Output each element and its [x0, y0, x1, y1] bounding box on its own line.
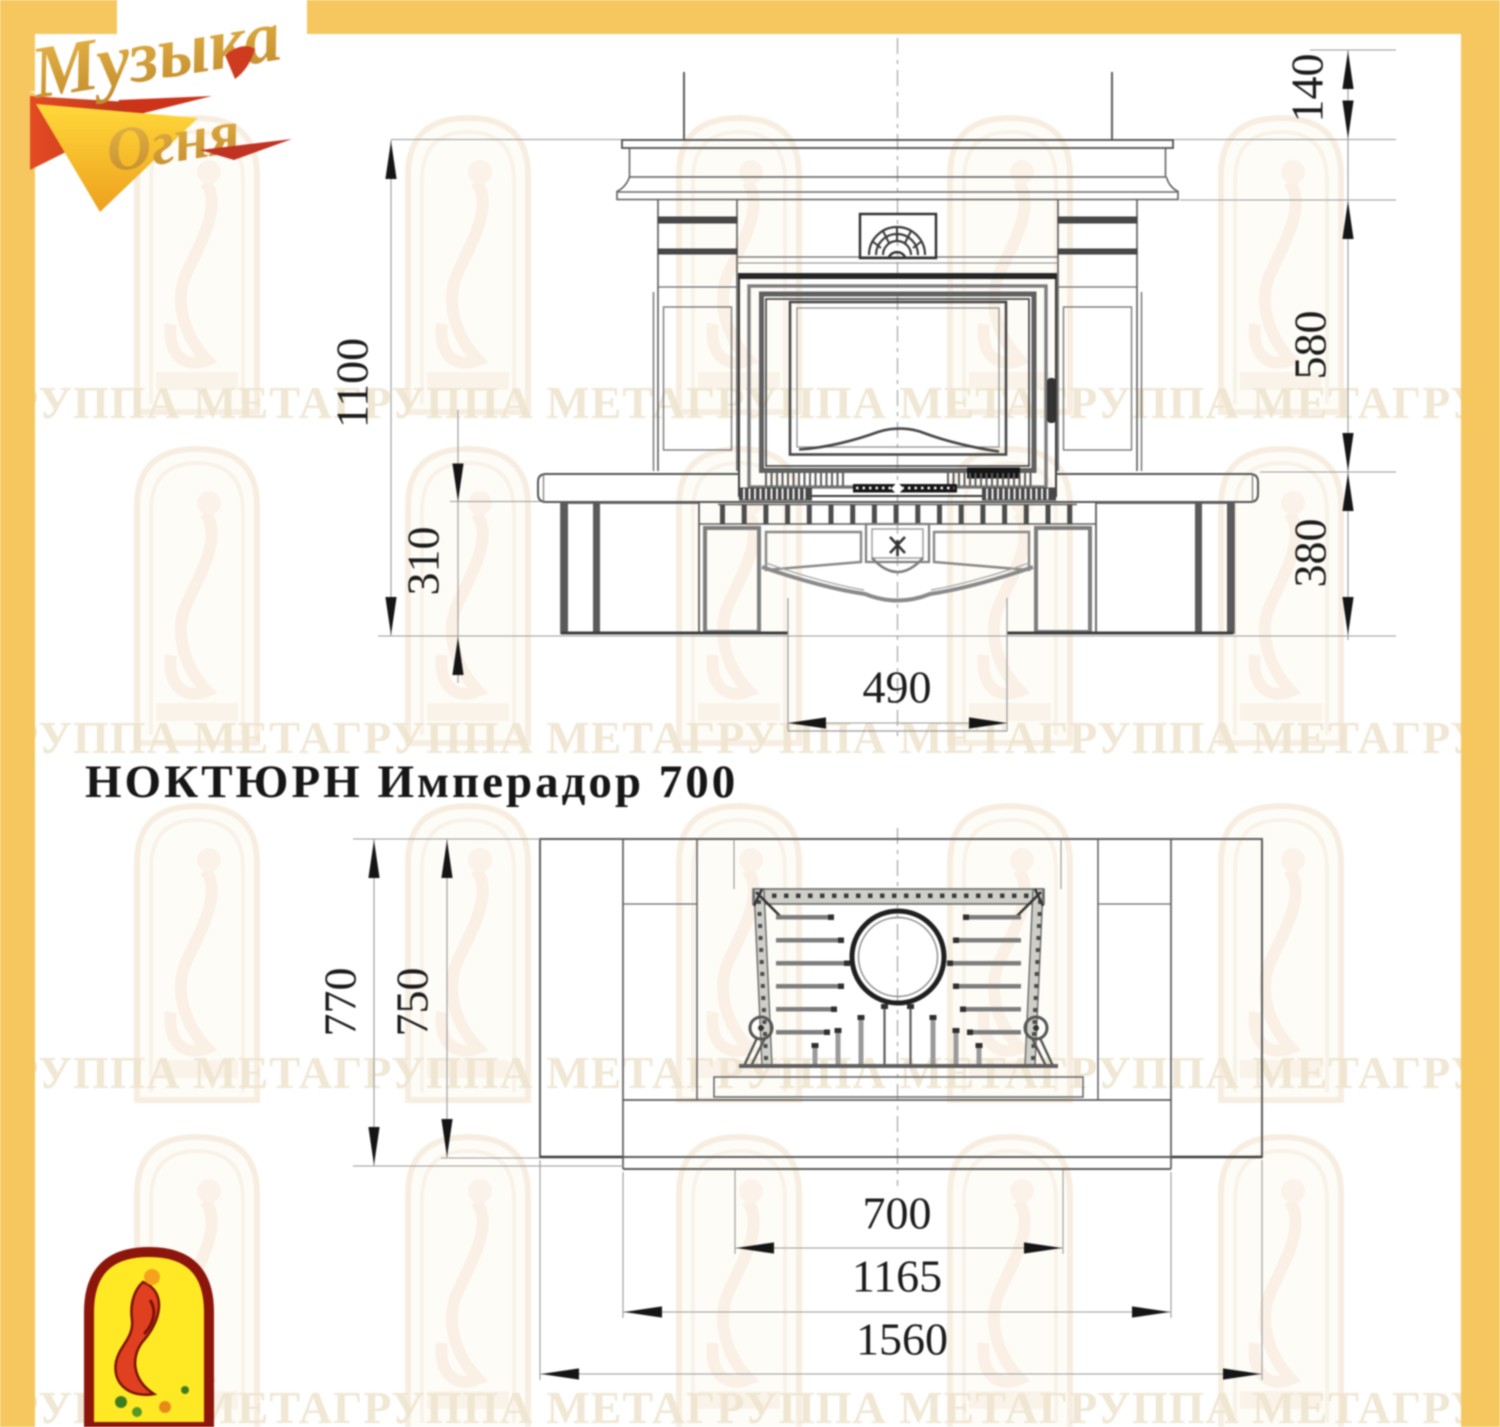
svg-text:700: 700 — [863, 1188, 932, 1239]
svg-text:770: 770 — [315, 968, 366, 1037]
svg-text:490: 490 — [863, 662, 932, 713]
svg-text:НОКТЮРН Имперадор 700: НОКТЮРН Имперадор 700 — [85, 756, 738, 808]
svg-text:1165: 1165 — [852, 1251, 942, 1302]
svg-text:750: 750 — [387, 968, 438, 1037]
svg-text:380: 380 — [1285, 519, 1336, 588]
svg-text:1100: 1100 — [327, 338, 378, 428]
svg-text:140: 140 — [1282, 54, 1333, 123]
svg-text:310: 310 — [398, 527, 449, 596]
svg-text:1560: 1560 — [856, 1314, 948, 1365]
svg-text:ГРУППА МЕТАГРУППА МЕТАГРУППА М: ГРУППА МЕТАГРУППА МЕТАГРУППА МЕТАГРУППА … — [0, 1382, 1500, 1427]
svg-text:580: 580 — [1285, 311, 1336, 380]
